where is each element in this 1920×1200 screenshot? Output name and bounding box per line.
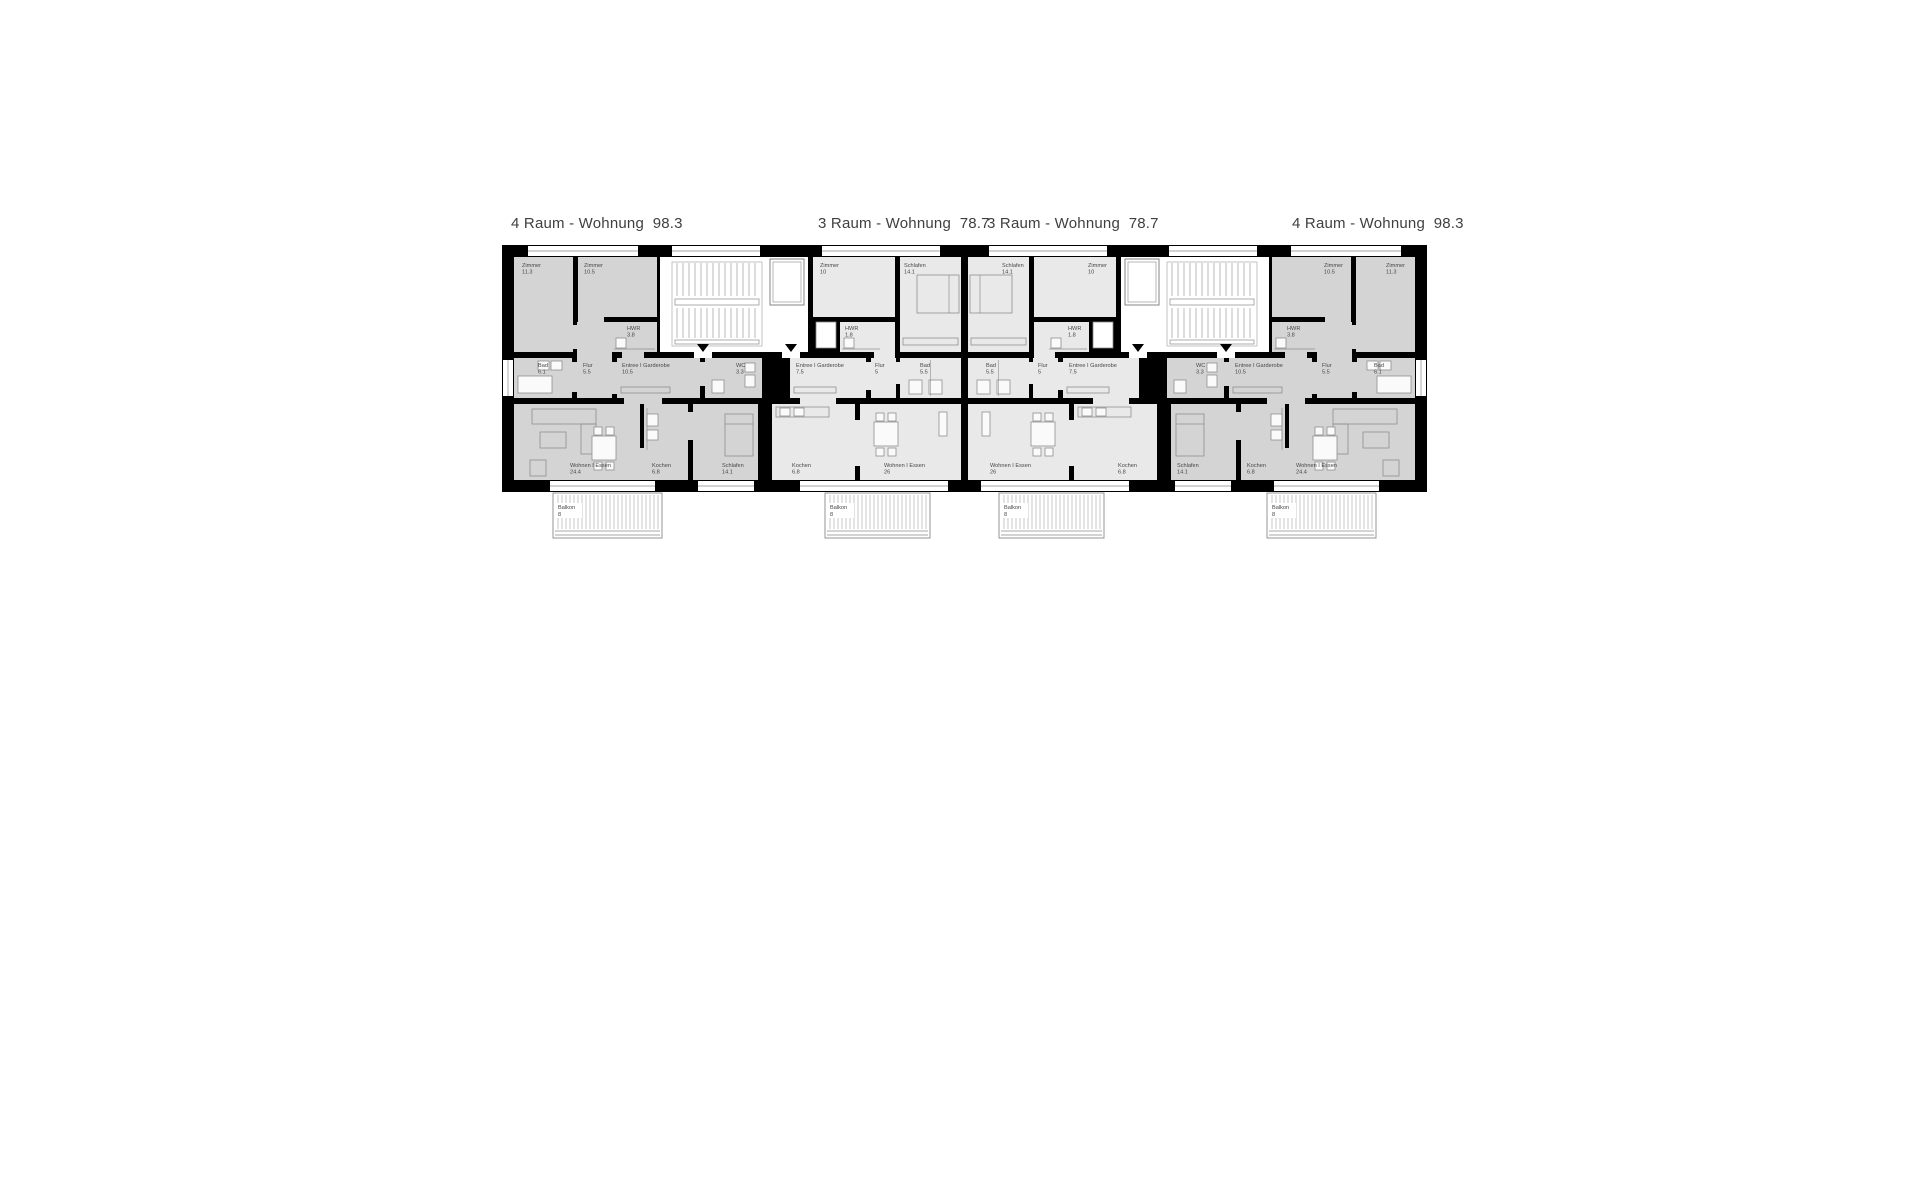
door-opening bbox=[1285, 352, 1307, 358]
room-flur bbox=[577, 322, 612, 398]
furniture-item bbox=[518, 376, 552, 393]
room-label-flur: Flur bbox=[1038, 363, 1048, 369]
balcony-label: Balkon bbox=[558, 505, 575, 511]
door-opening bbox=[1236, 412, 1241, 440]
room-label-wohnen-i-essen: Wohnen I Essen bbox=[570, 463, 611, 469]
room-area-schlafen: 14.1 bbox=[1002, 270, 1013, 276]
furniture-item bbox=[592, 436, 616, 460]
furniture-item bbox=[647, 414, 658, 426]
room-area-zimmer: 10.5 bbox=[584, 270, 595, 276]
furniture-item bbox=[551, 361, 562, 370]
room-label-zimmer: Zimmer bbox=[522, 263, 541, 269]
room-area-flur: 5.5 bbox=[1322, 370, 1330, 376]
furniture-item bbox=[1174, 380, 1186, 393]
room-area-hwr: 3.8 bbox=[627, 333, 635, 339]
door-opening bbox=[855, 420, 860, 466]
room-label-hwr: HWR bbox=[1287, 326, 1300, 332]
furniture-item bbox=[1207, 363, 1217, 372]
door-opening bbox=[1224, 362, 1229, 386]
room-label-bad: Bad bbox=[920, 363, 930, 369]
room-label-zimmer: Zimmer bbox=[1088, 263, 1107, 269]
room-label-flur: Flur bbox=[583, 363, 593, 369]
room-area-bad: 5.5 bbox=[986, 370, 994, 376]
room-label-bad: Bad bbox=[538, 363, 548, 369]
furniture-item bbox=[997, 380, 1010, 394]
furniture-item bbox=[1271, 430, 1282, 440]
furniture-item bbox=[1313, 436, 1337, 460]
balcony-label: Balkon bbox=[830, 505, 847, 511]
furniture-item bbox=[939, 412, 947, 436]
room-area-bad: 6.1 bbox=[1374, 370, 1382, 376]
room-area-entree-i-garderobe: 10.5 bbox=[622, 370, 633, 376]
furniture-item bbox=[1315, 427, 1323, 435]
furniture-item bbox=[745, 363, 755, 372]
duct-shaft bbox=[1093, 322, 1113, 348]
door-opening bbox=[866, 362, 871, 390]
room-label-kochen: Kochen bbox=[652, 463, 671, 469]
room-area-wc: 3.3 bbox=[1196, 370, 1204, 376]
door-opening bbox=[1267, 398, 1305, 404]
page: { "colors": { "wall": "#000000", "apt_4r… bbox=[0, 0, 1920, 1200]
room-label-wc: WC bbox=[1196, 363, 1205, 369]
furniture-item bbox=[1096, 408, 1106, 416]
room-label-schlafen: Schlafen bbox=[1002, 263, 1024, 269]
room-area-kochen: 6.8 bbox=[792, 470, 800, 476]
furniture-item bbox=[909, 380, 922, 394]
room-label-wohnen-i-essen: Wohnen I Essen bbox=[884, 463, 925, 469]
furniture-item bbox=[647, 430, 658, 440]
furniture-item bbox=[876, 413, 884, 421]
door-opening bbox=[1069, 420, 1074, 466]
room-area-zimmer: 10 bbox=[820, 270, 826, 276]
room-label-flur: Flur bbox=[875, 363, 885, 369]
room-area-zimmer: 10.5 bbox=[1324, 270, 1335, 276]
elevator-shaft bbox=[770, 259, 804, 305]
door-opening bbox=[800, 398, 836, 404]
room-area-zimmer: 11.3 bbox=[522, 270, 532, 276]
furniture-item bbox=[1207, 375, 1217, 387]
furniture-item bbox=[780, 408, 790, 416]
door-opening bbox=[640, 448, 644, 480]
balcony-label: Balkon bbox=[1004, 505, 1021, 511]
room-label-wc: WC bbox=[736, 363, 745, 369]
room-area-wohnen-i-essen: 26 bbox=[990, 470, 996, 476]
door-opening bbox=[882, 322, 895, 358]
furniture-item bbox=[1377, 376, 1411, 393]
room-label-entree-i-garderobe: Entree I Garderobe bbox=[622, 363, 670, 369]
door-opening bbox=[896, 362, 900, 384]
furniture-item bbox=[982, 412, 990, 436]
door-opening bbox=[1285, 448, 1289, 480]
door-opening bbox=[624, 398, 662, 404]
furniture-item bbox=[1045, 448, 1053, 456]
balcony-area: 8 bbox=[830, 512, 833, 518]
furniture-item bbox=[1031, 422, 1055, 446]
room-label-bad: Bad bbox=[1374, 363, 1384, 369]
door-opening bbox=[1351, 325, 1356, 349]
door-opening bbox=[700, 362, 705, 386]
floor-plan-canvas: 4 Raum - Wohnung 98.3 3 Raum - Wohnung 7… bbox=[0, 0, 1920, 1200]
entry-door-gap bbox=[1129, 352, 1147, 358]
room-label-flur: Flur bbox=[1322, 363, 1332, 369]
door-opening bbox=[688, 412, 693, 440]
room-area-kochen: 6.8 bbox=[1247, 470, 1255, 476]
room-label-wohnen-i-essen: Wohnen I Essen bbox=[1296, 463, 1337, 469]
room-label-kochen: Kochen bbox=[1247, 463, 1266, 469]
furniture-item bbox=[929, 380, 942, 394]
balcony-area: 8 bbox=[558, 512, 561, 518]
entry-door-gap bbox=[782, 352, 800, 358]
stair-landing bbox=[1170, 299, 1254, 305]
room-label-wohnen-i-essen: Wohnen I Essen bbox=[990, 463, 1031, 469]
door-opening bbox=[622, 352, 644, 358]
room-label-entree-i-garderobe: Entree I Garderobe bbox=[796, 363, 844, 369]
room-label-hwr: HWR bbox=[627, 326, 640, 332]
room-area-bad: 6.1 bbox=[538, 370, 546, 376]
furniture-item bbox=[876, 448, 884, 456]
room-area-wohnen-i-essen: 24.4 bbox=[570, 470, 581, 476]
furniture-item bbox=[712, 380, 724, 393]
furniture-item bbox=[977, 380, 990, 394]
furniture-item bbox=[594, 427, 602, 435]
furniture-item bbox=[874, 422, 898, 446]
door-opening bbox=[1093, 398, 1129, 404]
room-label-entree-i-garderobe: Entree I Garderobe bbox=[1235, 363, 1283, 369]
room-area-schlafen: 14.1 bbox=[722, 470, 733, 476]
room-label-zimmer: Zimmer bbox=[1386, 263, 1405, 269]
room-label-kochen: Kochen bbox=[1118, 463, 1137, 469]
room-area-flur: 5 bbox=[875, 370, 878, 376]
furniture-item bbox=[844, 338, 854, 348]
room-area-kochen: 6.8 bbox=[652, 470, 660, 476]
furniture-item bbox=[1045, 413, 1053, 421]
room-area-hwr: 1.8 bbox=[1068, 333, 1076, 339]
furniture-item bbox=[888, 413, 896, 421]
room-label-zimmer: Zimmer bbox=[1324, 263, 1343, 269]
door-opening bbox=[612, 362, 617, 394]
room-label-zimmer: Zimmer bbox=[584, 263, 603, 269]
furniture-item bbox=[1276, 338, 1286, 348]
furniture-item bbox=[794, 408, 804, 416]
entry-door-gap bbox=[1217, 352, 1235, 358]
room-area-zimmer: 11.3 bbox=[1386, 270, 1396, 276]
door-opening bbox=[1029, 362, 1033, 384]
door-opening bbox=[1312, 362, 1317, 394]
room-area-kochen: 6.8 bbox=[1118, 470, 1126, 476]
room-label-schlafen: Schlafen bbox=[904, 263, 926, 269]
furniture-item bbox=[1051, 338, 1061, 348]
furniture-item bbox=[616, 338, 626, 348]
room-area-zimmer: 10 bbox=[1088, 270, 1094, 276]
room-label-bad: Bad bbox=[986, 363, 996, 369]
room-area-schlafen: 14.1 bbox=[904, 270, 915, 276]
entry-door-gap bbox=[694, 352, 712, 358]
furniture-item bbox=[606, 427, 614, 435]
furniture-item bbox=[1082, 408, 1092, 416]
door-opening bbox=[1325, 317, 1351, 322]
door-opening bbox=[1058, 362, 1063, 390]
door-opening bbox=[578, 317, 604, 322]
furniture-item bbox=[1327, 427, 1335, 435]
stair-landing bbox=[675, 299, 759, 305]
furniture-item bbox=[888, 448, 896, 456]
furniture-item bbox=[1033, 448, 1041, 456]
room-area-entree-i-garderobe: 7.5 bbox=[1069, 370, 1077, 376]
room-area-bad: 5.5 bbox=[920, 370, 928, 376]
room-area-hwr: 1.8 bbox=[845, 333, 853, 339]
floor-plan-svg: Balkon8Balkon8Balkon8Balkon8Zimmer11.3Zi… bbox=[0, 0, 1920, 1200]
door-opening bbox=[573, 325, 578, 349]
balcony-area: 8 bbox=[1004, 512, 1007, 518]
balcony-area: 8 bbox=[1272, 512, 1275, 518]
door-opening bbox=[572, 362, 577, 392]
room-area-flur: 5 bbox=[1038, 370, 1041, 376]
room-label-schlafen: Schlafen bbox=[1177, 463, 1199, 469]
room-area-schlafen: 14.1 bbox=[1177, 470, 1188, 476]
room-area-wohnen-i-essen: 24.4 bbox=[1296, 470, 1307, 476]
room-area-wc: 3.3 bbox=[736, 370, 744, 376]
room-area-hwr: 3.8 bbox=[1287, 333, 1295, 339]
room-area-flur: 5.5 bbox=[583, 370, 591, 376]
room-label-entree-i-garderobe: Entree I Garderobe bbox=[1069, 363, 1117, 369]
door-opening bbox=[1352, 362, 1357, 392]
room-label-hwr: HWR bbox=[845, 326, 858, 332]
furniture-item bbox=[1033, 413, 1041, 421]
room-label-zimmer: Zimmer bbox=[820, 263, 839, 269]
room-flur bbox=[1317, 322, 1352, 398]
room-label-hwr: HWR bbox=[1068, 326, 1081, 332]
balcony-label: Balkon bbox=[1272, 505, 1289, 511]
furniture-item bbox=[745, 375, 755, 387]
door-opening bbox=[1034, 322, 1047, 358]
furniture-item bbox=[1271, 414, 1282, 426]
room-area-entree-i-garderobe: 7.5 bbox=[796, 370, 804, 376]
elevator-shaft bbox=[1125, 259, 1159, 305]
duct-shaft bbox=[816, 322, 836, 348]
room-label-kochen: Kochen bbox=[792, 463, 811, 469]
room-area-entree-i-garderobe: 10.5 bbox=[1235, 370, 1246, 376]
room-area-wohnen-i-essen: 26 bbox=[884, 470, 890, 476]
room-label-schlafen: Schlafen bbox=[722, 463, 744, 469]
